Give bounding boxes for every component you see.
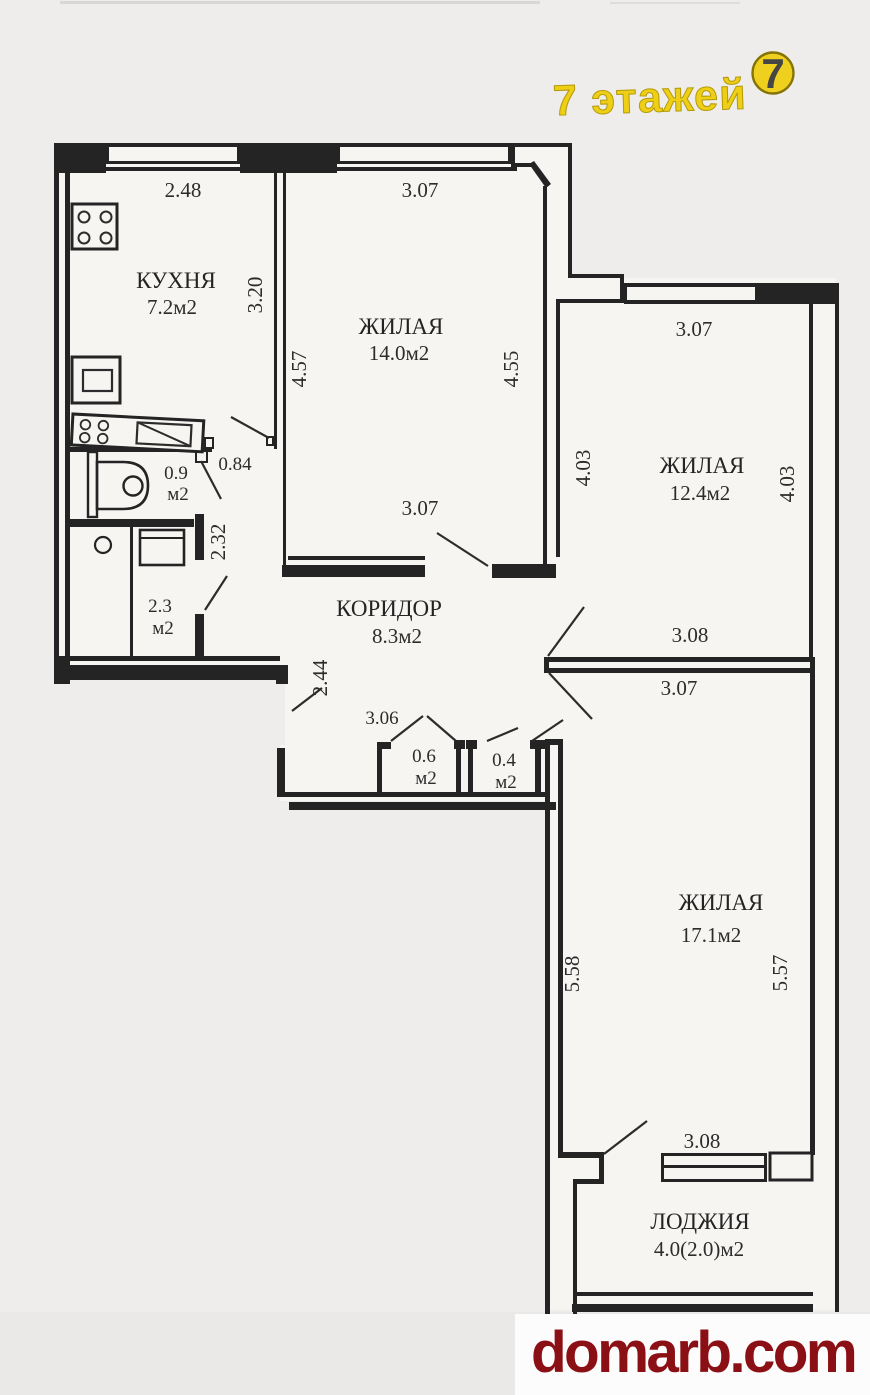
svg-text:2.3: 2.3 [148,596,172,617]
svg-text:ЖИЛАЯ: ЖИЛАЯ [679,890,764,915]
svg-text:0.84: 0.84 [218,454,252,475]
svg-text:ЛОДЖИЯ: ЛОДЖИЯ [650,1209,749,1234]
svg-text:4.03: 4.03 [775,466,799,503]
svg-text:5.57: 5.57 [768,955,792,992]
svg-text:3.20: 3.20 [243,277,267,314]
svg-text:4.55: 4.55 [499,351,523,388]
svg-text:7 этажей: 7 этажей [552,71,747,126]
svg-text:3.08: 3.08 [672,623,709,647]
svg-text:17.1м2: 17.1м2 [681,923,742,947]
svg-text:4.57: 4.57 [287,351,311,388]
svg-text:м2: м2 [167,484,189,505]
svg-text:14.0м2: 14.0м2 [369,341,430,365]
svg-text:0.6: 0.6 [412,746,436,767]
svg-text:м2: м2 [152,618,174,639]
svg-text:0.9: 0.9 [164,463,188,484]
svg-text:ЖИЛАЯ: ЖИЛАЯ [359,314,444,339]
svg-text:м2: м2 [415,768,437,789]
svg-text:2.44: 2.44 [308,659,332,696]
svg-text:7.2м2: 7.2м2 [147,295,197,319]
svg-text:0.4: 0.4 [492,750,516,771]
svg-text:12.4м2: 12.4м2 [670,481,731,505]
svg-text:8.3м2: 8.3м2 [372,624,422,648]
svg-text:4.03: 4.03 [571,450,595,487]
svg-text:2.48: 2.48 [165,178,202,202]
svg-text:3.07: 3.07 [661,676,698,700]
svg-text:3.07: 3.07 [402,178,439,202]
svg-text:КОРИДОР: КОРИДОР [336,596,442,621]
svg-text:domarb.com: domarb.com [531,1320,855,1385]
svg-text:ЖИЛАЯ: ЖИЛАЯ [660,453,745,478]
svg-text:КУХНЯ: КУХНЯ [136,268,216,293]
svg-text:2.32: 2.32 [206,524,230,561]
svg-text:3.07: 3.07 [676,317,713,341]
svg-text:м2: м2 [495,772,517,793]
svg-text:3.06: 3.06 [365,708,398,729]
svg-text:7: 7 [761,50,784,97]
svg-text:3.07: 3.07 [402,496,439,520]
svg-text:4.0(2.0)м2: 4.0(2.0)м2 [654,1237,744,1261]
svg-text:3.08: 3.08 [684,1129,721,1153]
svg-text:5.58: 5.58 [560,956,584,993]
